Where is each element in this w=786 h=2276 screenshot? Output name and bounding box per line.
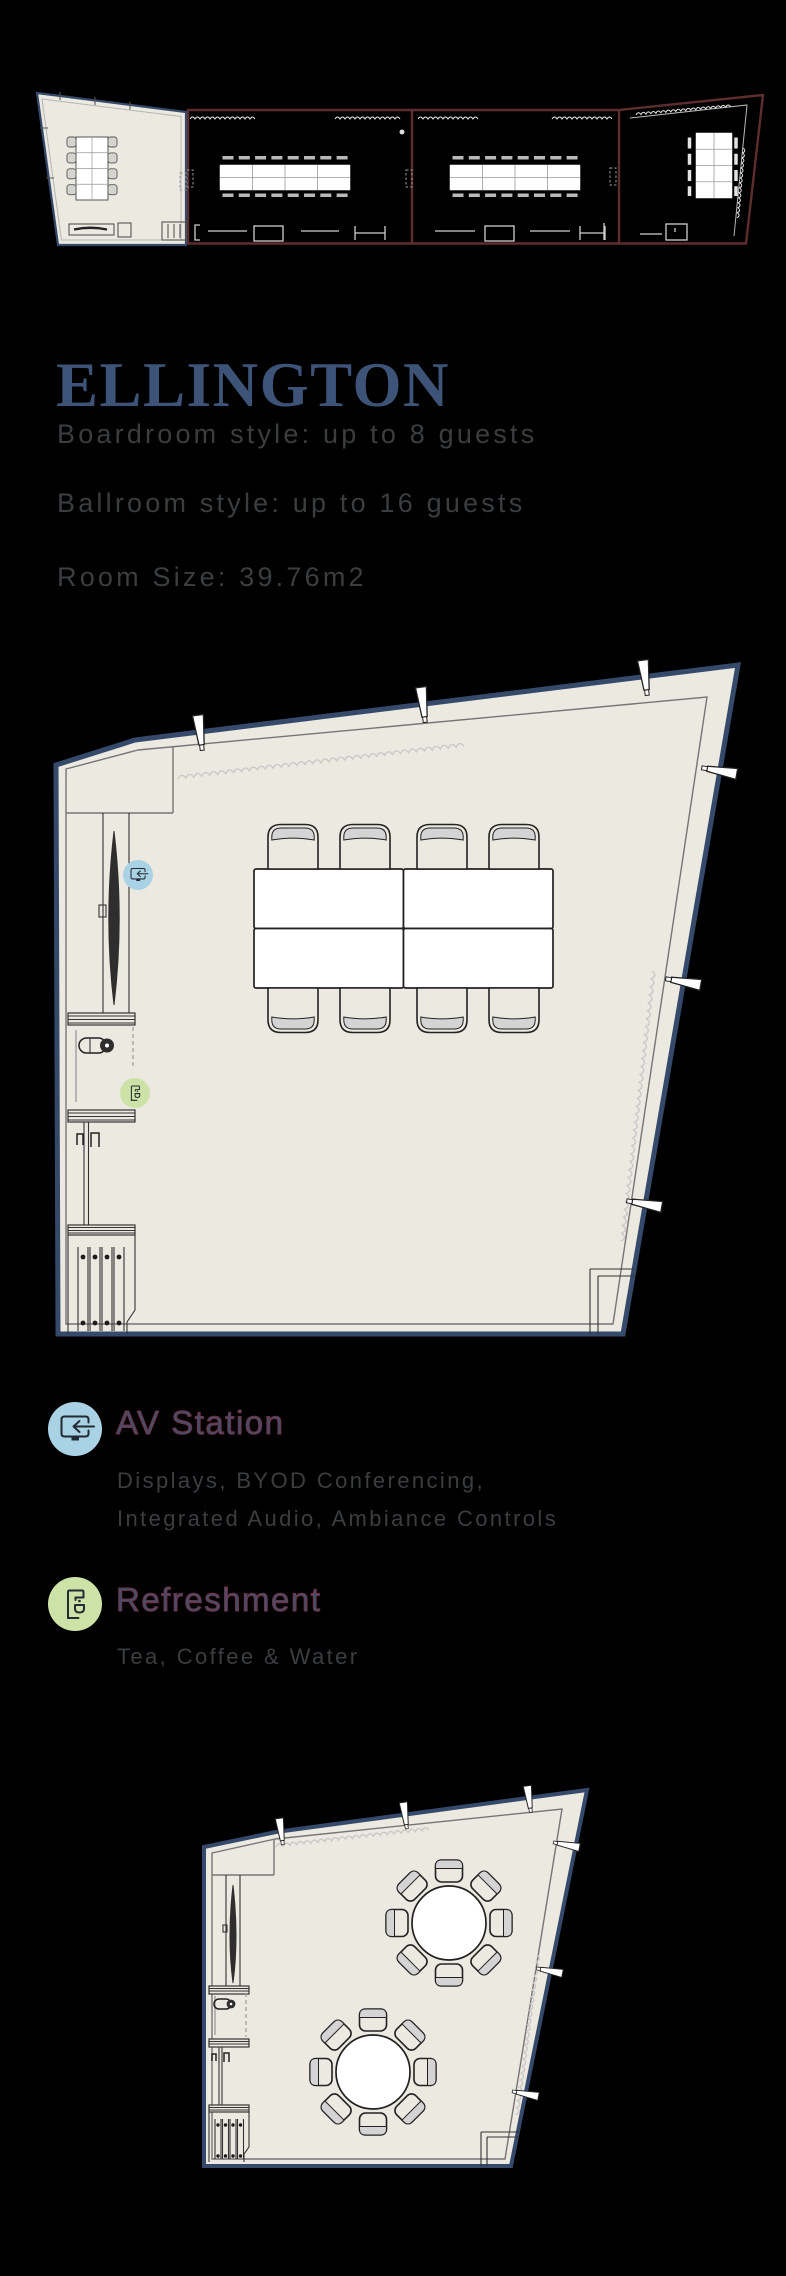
room-outline <box>56 665 738 1334</box>
window-sill <box>68 1110 135 1122</box>
overview-room4-boardroom <box>604 133 736 240</box>
ceiling-dot <box>400 130 405 135</box>
av-station-badge <box>48 1402 102 1456</box>
legend-heading-refreshment: Refreshment <box>116 1581 321 1619</box>
curtain <box>190 117 255 119</box>
boardroom-table <box>254 869 553 988</box>
overview-ellington-room-highlighted <box>37 92 186 245</box>
overview-room3-boardroom <box>435 158 605 241</box>
curtain <box>418 117 478 119</box>
legend-ref-line1: Tea, Coffee & Water <box>117 1644 359 1669</box>
overview-room2-boardroom <box>195 158 385 241</box>
round-table-2 <box>310 2009 436 2135</box>
legend-av-line1: Displays, BYOD Conferencing, <box>117 1468 485 1493</box>
window-sill <box>209 1986 249 1994</box>
curtain <box>737 148 745 218</box>
legend-description-refreshment: Tea, Coffee & Water <box>117 1638 359 1676</box>
refreshment-badge <box>48 1577 102 1631</box>
overview-dark-rooms <box>187 95 763 244</box>
curtain <box>335 117 400 119</box>
page-title: ELLINGTON <box>56 354 450 417</box>
door <box>610 168 616 185</box>
window-sill <box>68 1013 135 1025</box>
spec-boardroom-capacity: Boardroom style: up to 8 guests <box>57 419 537 450</box>
legend-heading-av-station: AV Station <box>116 1404 284 1442</box>
av-station-marker <box>123 860 153 890</box>
boardroom-floor-plan <box>50 655 750 1345</box>
spec-room-size: Room Size: 39.76m2 <box>57 562 367 593</box>
refreshment-marker <box>120 1078 150 1108</box>
spec-ballroom-capacity: Ballroom style: up to 16 guests <box>57 488 525 519</box>
round-table-1 <box>386 1860 512 1986</box>
ballroom-floor-plan <box>196 1785 590 2185</box>
room-spec-page: ELLINGTON Boardroom style: up to 8 guest… <box>0 0 786 2276</box>
legend-av-line2: Integrated Audio, Ambiance Controls <box>117 1506 558 1531</box>
window-sill <box>209 2039 249 2047</box>
venue-overview-floor-plan <box>30 88 766 254</box>
curtain <box>552 117 612 119</box>
legend-description-av-station: Displays, BYOD Conferencing, Integrated … <box>117 1462 558 1538</box>
